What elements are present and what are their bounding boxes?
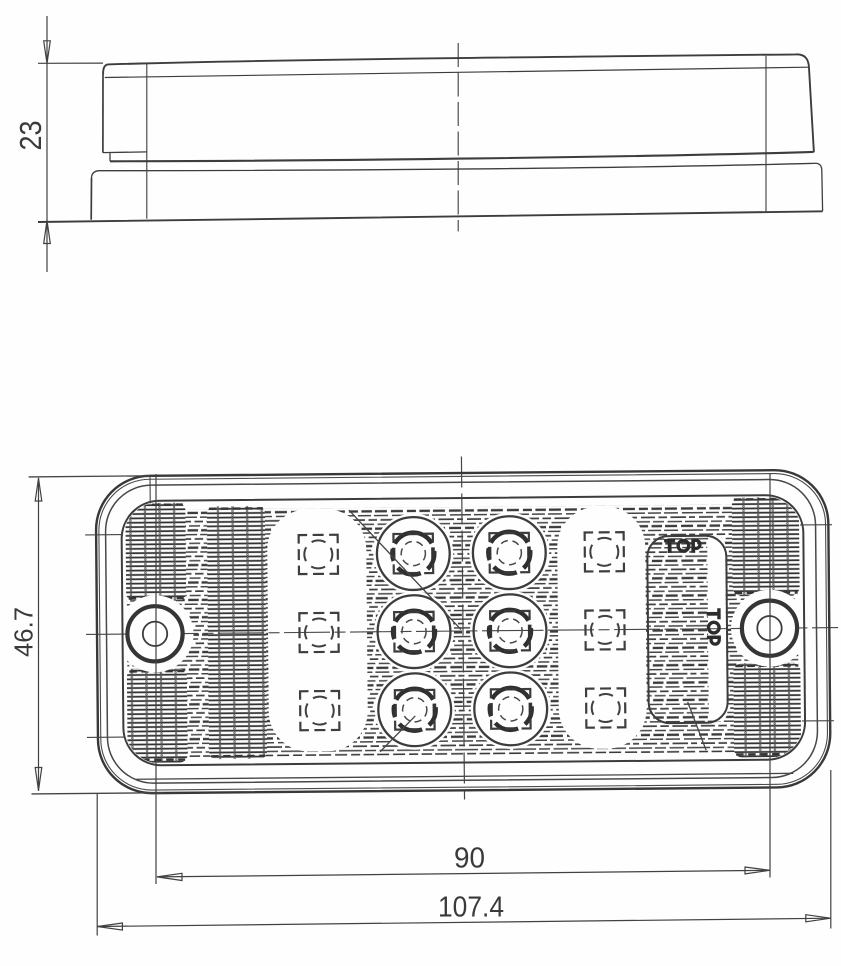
svg-text:90: 90 xyxy=(454,843,485,875)
svg-text:107.4: 107.4 xyxy=(438,891,504,923)
svg-text:23: 23 xyxy=(13,121,48,151)
svg-text:46.7: 46.7 xyxy=(9,607,39,657)
